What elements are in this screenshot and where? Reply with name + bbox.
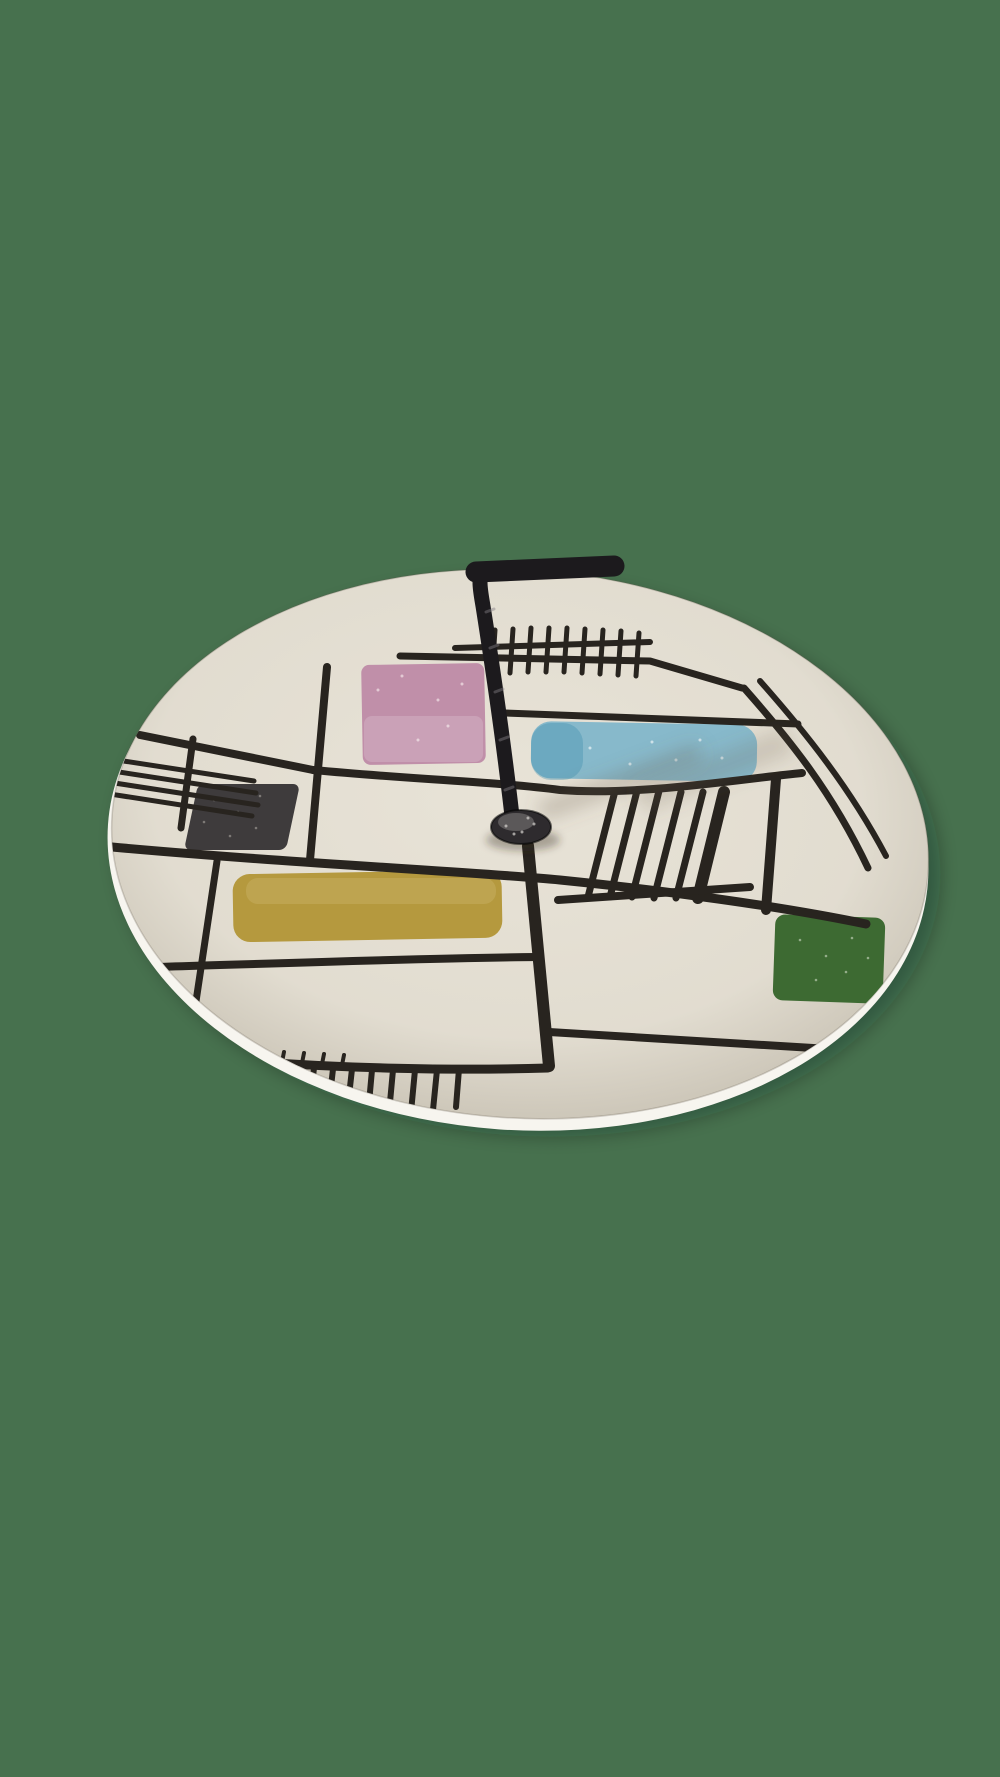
pink-swatch-sheen [364,716,483,762]
pink-rectangle [361,663,486,765]
handle-top-grip [476,566,614,572]
handle-knob [491,810,551,844]
knob-highlight [498,813,534,831]
plate-photo [0,0,1000,1777]
yellow-rectangle [232,870,502,943]
blue-swatch-deep-end [531,723,583,780]
yellow-swatch-sheen [246,878,496,904]
